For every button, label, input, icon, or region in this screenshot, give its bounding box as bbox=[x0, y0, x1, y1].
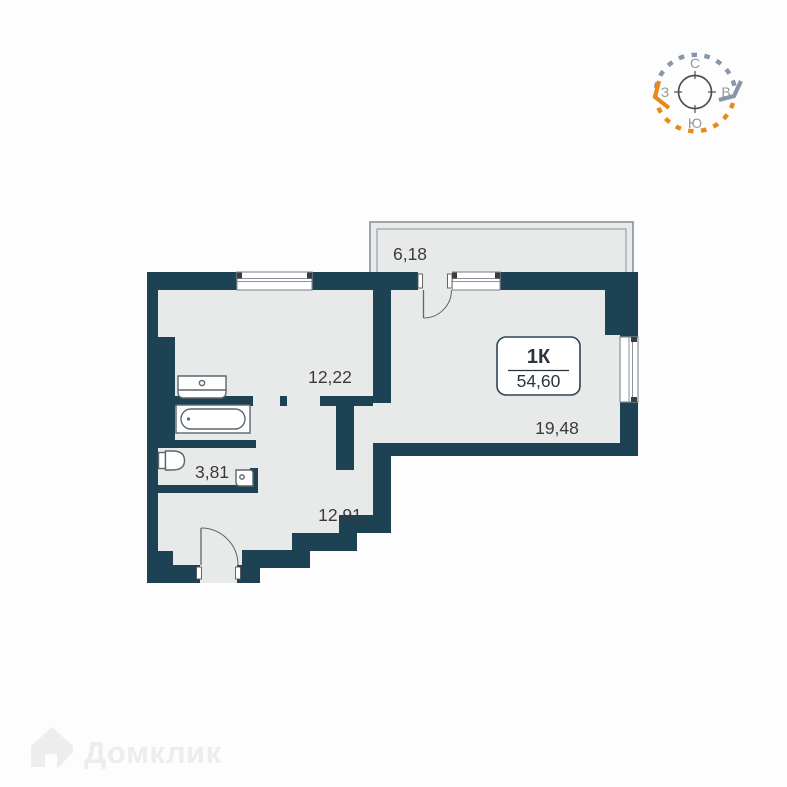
brand-house-icon bbox=[31, 727, 73, 767]
window-room-top bbox=[237, 272, 312, 290]
room-area-bathroom: 3,81 bbox=[195, 462, 229, 482]
room-area-balcony: 6,18 bbox=[393, 244, 427, 264]
window-living-top bbox=[452, 272, 500, 290]
compass-south-label: Ю bbox=[688, 115, 702, 131]
compass: С В Ю З bbox=[655, 55, 741, 131]
brand-name: Домклик bbox=[84, 735, 222, 770]
floorplan-svg: 1К 54,60 6,18 12,22 19,48 3,81 12,91 С В… bbox=[0, 0, 787, 787]
compass-west-label: З bbox=[661, 84, 669, 100]
compass-north-label: С bbox=[690, 55, 700, 71]
brand-watermark: Домклик bbox=[31, 727, 222, 770]
room-area-hallway: 12,91 bbox=[318, 505, 362, 525]
unit-info-box: 1К 54,60 bbox=[497, 337, 580, 395]
toilet-icon bbox=[159, 451, 185, 470]
corner-sink-icon bbox=[236, 470, 253, 486]
unit-total-area: 54,60 bbox=[517, 371, 561, 391]
unit-type-label: 1К bbox=[527, 346, 551, 368]
room-area-living: 19,48 bbox=[535, 418, 579, 438]
window-living-right bbox=[620, 337, 638, 402]
room-area-room: 12,22 bbox=[308, 367, 352, 387]
compass-east-label: В bbox=[721, 84, 730, 100]
floorplan-page: 1К 54,60 6,18 12,22 19,48 3,81 12,91 С В… bbox=[0, 0, 787, 787]
bathtub-icon bbox=[176, 405, 250, 433]
sink-icon bbox=[178, 376, 226, 398]
